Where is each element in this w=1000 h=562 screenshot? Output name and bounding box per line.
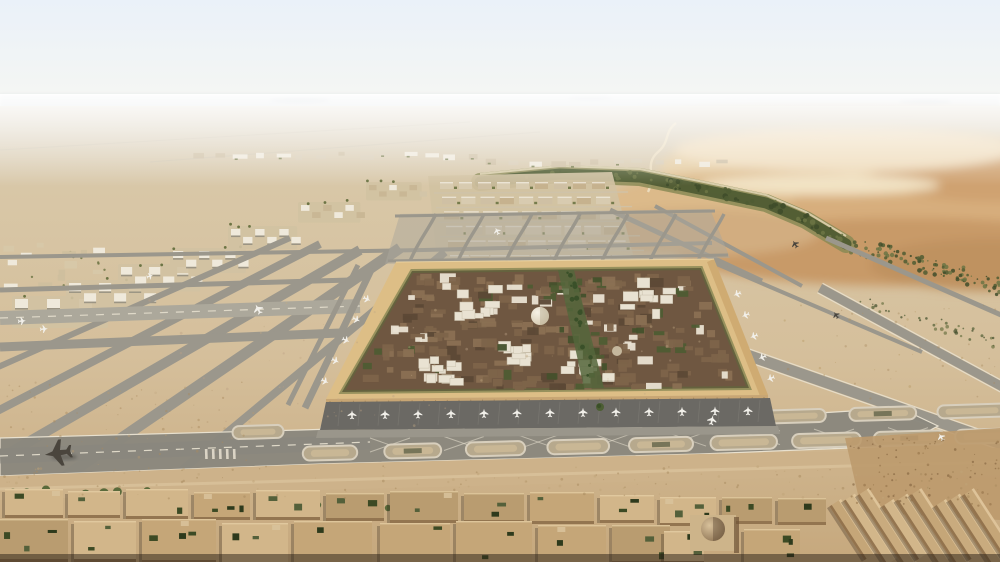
sand-speckle bbox=[79, 494, 80, 495]
courtyard bbox=[368, 500, 377, 506]
tree bbox=[578, 324, 581, 327]
sand-speckle bbox=[995, 442, 997, 444]
sand-speckle bbox=[552, 355, 553, 356]
shrub bbox=[958, 325, 960, 327]
sand-speckle bbox=[921, 480, 923, 482]
sand-speckle bbox=[655, 483, 657, 485]
sand-speckle bbox=[6, 482, 7, 483]
shrub bbox=[962, 328, 964, 330]
sand-speckle bbox=[355, 313, 356, 314]
sand-speckle bbox=[939, 359, 941, 361]
sand-speckle bbox=[829, 469, 830, 470]
town-block bbox=[8, 260, 17, 265]
shrub bbox=[916, 256, 920, 260]
terminal-building-block bbox=[701, 357, 712, 362]
shrub bbox=[988, 290, 991, 293]
sand-speckle bbox=[428, 404, 430, 406]
green-courtyard bbox=[632, 328, 638, 332]
shrub bbox=[996, 277, 999, 280]
sand-speckle bbox=[226, 388, 229, 391]
shrub bbox=[878, 242, 883, 247]
sand-speckle bbox=[634, 479, 635, 480]
sand-speckle bbox=[957, 498, 959, 500]
sand-speckle bbox=[468, 486, 470, 488]
shrub bbox=[977, 278, 979, 280]
canopy-shadow bbox=[291, 243, 300, 245]
courtyard bbox=[630, 499, 639, 503]
shrub bbox=[902, 252, 906, 256]
roof-highlight bbox=[444, 211, 459, 212]
shrub bbox=[943, 271, 946, 274]
threshold-marking bbox=[226, 449, 229, 459]
sand-speckle bbox=[9, 481, 10, 482]
sand-speckle bbox=[591, 309, 592, 310]
roof-patch bbox=[204, 494, 212, 499]
canopy-shadow bbox=[69, 291, 81, 293]
sand-speckle bbox=[327, 415, 329, 417]
sand-speckle bbox=[215, 449, 216, 450]
sand-speckle bbox=[886, 454, 888, 456]
sand-speckle bbox=[169, 411, 170, 412]
sand-speckle bbox=[941, 478, 943, 480]
sand-speckle bbox=[867, 440, 868, 441]
canopy-shadow bbox=[255, 235, 264, 237]
courtyard bbox=[15, 494, 24, 499]
shrub bbox=[877, 251, 879, 253]
sand-speckle bbox=[951, 355, 952, 356]
sand-speckle bbox=[599, 489, 601, 491]
tree bbox=[597, 404, 601, 408]
terminal-building-block bbox=[507, 285, 523, 290]
shrub bbox=[983, 337, 985, 339]
shrub bbox=[821, 231, 825, 235]
shrub bbox=[910, 255, 912, 257]
sand-speckle bbox=[906, 437, 908, 439]
sand-speckle bbox=[156, 484, 158, 486]
sand-speckle bbox=[905, 490, 907, 492]
sand-speckle bbox=[944, 323, 945, 324]
terminal-building-block bbox=[382, 344, 393, 351]
sand-speckle bbox=[120, 390, 122, 392]
sand-speckle bbox=[981, 491, 984, 494]
terminal-building-block bbox=[678, 276, 690, 286]
sand-speckle bbox=[180, 332, 183, 335]
sand-speckle bbox=[893, 473, 895, 475]
roof-highlight bbox=[538, 197, 552, 198]
sand-speckle bbox=[138, 456, 141, 459]
terminal-building-block bbox=[387, 367, 393, 373]
sand-speckle bbox=[879, 471, 881, 473]
shrub bbox=[956, 278, 960, 282]
tree bbox=[139, 264, 142, 267]
sand-speckle bbox=[392, 395, 394, 397]
sand-speckle bbox=[374, 311, 376, 313]
roof-highlight bbox=[464, 211, 479, 212]
courtyard bbox=[695, 504, 704, 508]
sand-speckle bbox=[505, 333, 508, 336]
sand-speckle bbox=[873, 484, 874, 485]
sand-speckle bbox=[912, 354, 913, 355]
sand-speckle bbox=[937, 473, 939, 475]
canopy-building bbox=[84, 293, 96, 301]
pad-green-strip bbox=[874, 411, 892, 417]
canopy-building bbox=[114, 293, 126, 301]
sand-speckle bbox=[141, 389, 142, 390]
sand-speckle bbox=[476, 471, 478, 473]
sand-speckle bbox=[981, 364, 983, 366]
sand-speckle bbox=[162, 418, 164, 420]
courtyard bbox=[337, 498, 345, 503]
terminal-building-block bbox=[615, 377, 629, 386]
sand-speckle bbox=[756, 465, 759, 468]
sand-speckle bbox=[65, 412, 68, 415]
roof-highlight bbox=[722, 497, 772, 498]
sand-speckle bbox=[260, 332, 262, 334]
sand-speckle bbox=[698, 341, 700, 343]
sand-speckle bbox=[76, 412, 78, 414]
sand-speckle bbox=[49, 385, 51, 387]
sand-speckle bbox=[835, 362, 836, 363]
sand-speckle bbox=[890, 378, 891, 379]
shrub bbox=[864, 247, 868, 251]
sand-speckle bbox=[965, 380, 966, 381]
shrub bbox=[992, 286, 996, 290]
apron-pad-inner bbox=[240, 428, 275, 435]
district-block bbox=[301, 205, 309, 211]
sand-speckle bbox=[927, 448, 929, 450]
sand-speckle bbox=[203, 377, 205, 379]
courtyard bbox=[232, 533, 239, 540]
tree bbox=[574, 318, 578, 322]
terminal-building-block bbox=[576, 384, 585, 390]
shrub bbox=[919, 319, 921, 321]
white-building-block bbox=[620, 304, 635, 309]
sand-speckle bbox=[841, 310, 842, 311]
terminal-building-block bbox=[403, 316, 412, 322]
sand-speckle bbox=[968, 493, 969, 494]
sand-speckle bbox=[603, 479, 604, 480]
gate-apron-surface bbox=[320, 398, 776, 430]
shrub bbox=[973, 282, 975, 284]
sand-speckle bbox=[908, 385, 911, 388]
terminal-building-block bbox=[499, 295, 512, 302]
sand-speckle bbox=[929, 488, 930, 489]
terminal-building-block bbox=[415, 337, 422, 342]
green-courtyard bbox=[497, 344, 506, 351]
shrub bbox=[853, 240, 857, 244]
white-building-block bbox=[637, 278, 649, 288]
tree bbox=[106, 277, 109, 280]
sand-speckle bbox=[37, 467, 40, 470]
shrub bbox=[734, 197, 738, 201]
shrub bbox=[810, 219, 816, 225]
sand-speckle bbox=[869, 397, 871, 399]
sand-speckle bbox=[117, 414, 118, 415]
sand-speckle bbox=[995, 478, 997, 480]
sand-speckle bbox=[922, 452, 923, 453]
block-face bbox=[126, 516, 188, 519]
shrub bbox=[895, 254, 898, 257]
courtyard bbox=[253, 536, 259, 539]
sand-speckle bbox=[895, 321, 898, 324]
courtyard bbox=[239, 506, 243, 513]
terminal-building-block bbox=[447, 346, 457, 355]
shrub bbox=[885, 310, 887, 312]
shrub bbox=[890, 253, 894, 257]
sand-speckle bbox=[669, 359, 671, 361]
sand-speckle bbox=[882, 497, 884, 499]
canopy-building bbox=[186, 260, 196, 267]
tree bbox=[97, 261, 99, 263]
threshold-marking bbox=[205, 449, 208, 459]
cast-shadow bbox=[461, 496, 464, 523]
courtyard bbox=[4, 532, 10, 539]
sand-speckle bbox=[899, 462, 900, 463]
roof-highlight bbox=[461, 197, 475, 198]
sand-speckle bbox=[994, 308, 996, 310]
terminal-building-block bbox=[618, 359, 632, 367]
sand-speckle bbox=[887, 473, 889, 475]
courtyard bbox=[433, 526, 442, 529]
terminal-building-block bbox=[614, 281, 625, 286]
courtyard bbox=[726, 506, 730, 512]
sand-speckle bbox=[948, 308, 949, 309]
sand-speckle bbox=[218, 367, 219, 368]
white-building-block bbox=[447, 361, 456, 367]
terminal-building-block bbox=[718, 350, 726, 358]
sand-speckle bbox=[548, 487, 550, 489]
sand-speckle bbox=[263, 326, 265, 328]
sand-speckle bbox=[943, 308, 944, 309]
sand-speckle bbox=[970, 470, 971, 471]
terminal-building-block bbox=[649, 278, 663, 287]
sand-speckle bbox=[817, 470, 818, 471]
tree bbox=[103, 269, 105, 271]
terminal-building-block bbox=[474, 288, 484, 292]
terminal-building-block bbox=[481, 321, 496, 326]
shrub bbox=[986, 276, 988, 278]
sand-speckle bbox=[184, 387, 186, 389]
terminal-building-block bbox=[638, 356, 653, 364]
terminal-building-block bbox=[695, 348, 703, 356]
terminal-building-block bbox=[408, 295, 415, 300]
sand-speckle bbox=[885, 485, 887, 487]
sand-speckle bbox=[819, 367, 821, 369]
sand-speckle bbox=[241, 381, 243, 383]
terminal-building-block bbox=[627, 311, 634, 317]
sand-speckle bbox=[789, 482, 790, 483]
sand-speckle bbox=[941, 330, 942, 331]
sand-speckle bbox=[906, 318, 908, 320]
sand-speckle bbox=[673, 326, 675, 328]
canopy-shadow bbox=[225, 258, 235, 260]
sand-speckle bbox=[382, 465, 384, 467]
sand-speckle bbox=[159, 453, 161, 455]
sand-speckle bbox=[199, 494, 202, 497]
sand-speckle bbox=[98, 464, 99, 465]
sand-speckle bbox=[453, 489, 455, 491]
shrub bbox=[811, 226, 814, 229]
green-courtyard bbox=[596, 355, 605, 359]
shrub bbox=[944, 331, 947, 334]
sand-speckle bbox=[259, 468, 260, 469]
shrub bbox=[864, 241, 866, 243]
sand-speckle bbox=[883, 476, 885, 478]
terminal-building-block bbox=[685, 346, 693, 350]
sand-speckle bbox=[297, 403, 298, 404]
cast-shadow bbox=[123, 492, 126, 519]
district-block bbox=[345, 205, 353, 211]
sand-speckle bbox=[480, 379, 482, 381]
shrub bbox=[724, 196, 730, 202]
roof-highlight bbox=[481, 197, 495, 198]
sand-speckle bbox=[452, 478, 455, 481]
block-face bbox=[530, 521, 594, 524]
sand-speckle bbox=[109, 399, 110, 400]
sand-speckle bbox=[655, 499, 656, 500]
sand-speckle bbox=[207, 421, 209, 423]
town-block bbox=[58, 275, 65, 281]
sand-speckle bbox=[641, 350, 643, 352]
courtyard bbox=[105, 526, 110, 529]
green-strip bbox=[568, 187, 571, 189]
shrub bbox=[907, 263, 910, 266]
terminal-building-block bbox=[608, 299, 614, 305]
sand-speckle bbox=[851, 313, 853, 315]
sand-speckle bbox=[284, 496, 285, 497]
tree bbox=[572, 281, 576, 285]
terminal-building-block bbox=[511, 297, 527, 304]
white-building-block bbox=[512, 353, 526, 359]
sand-speckle bbox=[842, 487, 845, 490]
sand-speckle bbox=[802, 496, 805, 499]
city-block bbox=[74, 521, 136, 559]
green-strip bbox=[534, 202, 537, 204]
sand-speckle bbox=[905, 497, 907, 499]
sand-speckle bbox=[969, 476, 971, 478]
courtyard bbox=[789, 539, 793, 545]
shrub bbox=[981, 334, 984, 337]
tree bbox=[566, 272, 568, 274]
courtyard bbox=[269, 496, 278, 501]
shrub bbox=[935, 263, 938, 266]
terminal-building-block bbox=[488, 370, 497, 377]
district-block bbox=[399, 191, 407, 196]
terminal-building-block bbox=[431, 309, 446, 313]
cast-shadow bbox=[657, 500, 660, 526]
sand-speckle bbox=[965, 483, 968, 486]
canopy-building bbox=[149, 267, 160, 275]
apron-pad-inner bbox=[800, 436, 853, 444]
sand-speckle bbox=[891, 479, 893, 481]
sand-speckle bbox=[345, 491, 346, 492]
gate-apron bbox=[316, 398, 780, 438]
sand-speckle bbox=[913, 485, 915, 487]
shrub bbox=[985, 339, 987, 341]
green-strip bbox=[454, 187, 457, 189]
sand-speckle bbox=[344, 497, 346, 499]
sand-speckle bbox=[895, 449, 897, 451]
sand-speckle bbox=[607, 380, 609, 382]
white-building-block bbox=[488, 285, 502, 293]
shrub bbox=[705, 190, 708, 193]
shrub bbox=[775, 203, 778, 206]
sand-speckle bbox=[283, 352, 285, 354]
city-block bbox=[194, 492, 250, 517]
shrub bbox=[918, 317, 920, 319]
block-face bbox=[5, 515, 63, 518]
cast-shadow bbox=[2, 492, 5, 518]
roof-highlight bbox=[519, 197, 533, 198]
courtyard bbox=[48, 530, 57, 533]
sand-speckle bbox=[188, 393, 190, 395]
sand-speckle bbox=[560, 478, 563, 481]
city-block bbox=[530, 492, 594, 521]
courtyard bbox=[538, 497, 544, 500]
sand-speckle bbox=[197, 473, 200, 476]
sand-speckle bbox=[787, 368, 790, 371]
cast-shadow bbox=[527, 495, 530, 524]
shrub bbox=[922, 267, 925, 270]
shrub bbox=[814, 224, 819, 229]
canopy-building bbox=[291, 237, 300, 243]
sand-speckle bbox=[678, 495, 680, 497]
sand-speckle bbox=[996, 459, 998, 461]
sand-speckle bbox=[19, 439, 20, 440]
sand-speckle bbox=[243, 495, 245, 497]
tree bbox=[588, 364, 591, 367]
canopy-building bbox=[255, 229, 264, 235]
courtyard bbox=[188, 532, 196, 536]
sand-speckle bbox=[518, 477, 519, 478]
roof-highlight bbox=[596, 197, 610, 198]
sand-speckle bbox=[413, 424, 416, 427]
sand-speckle bbox=[663, 467, 666, 470]
canopy-shadow bbox=[231, 235, 240, 237]
sand-speckle bbox=[915, 311, 916, 312]
white-building-block bbox=[442, 283, 450, 289]
sand-speckle bbox=[902, 443, 904, 445]
shrub bbox=[959, 268, 960, 269]
sand-speckle bbox=[139, 470, 140, 471]
terminal-building-block bbox=[636, 315, 647, 325]
sand-speckle bbox=[148, 299, 150, 301]
tree bbox=[160, 263, 163, 266]
terminal-complex bbox=[320, 259, 776, 408]
sand-speckle bbox=[937, 346, 940, 349]
sand-speckle bbox=[38, 438, 39, 439]
shrub bbox=[900, 316, 902, 318]
sand-speckle bbox=[863, 484, 866, 487]
terminal-building-block bbox=[426, 326, 434, 330]
sand-speckle bbox=[919, 347, 921, 349]
terminal-building-block bbox=[424, 279, 434, 286]
tree bbox=[580, 309, 582, 311]
sand-speckle bbox=[822, 476, 824, 478]
terminal-building-block bbox=[559, 338, 569, 346]
block-face bbox=[600, 520, 654, 523]
sand-speckle bbox=[356, 341, 358, 343]
courtyard bbox=[227, 506, 234, 510]
sand-speckle bbox=[928, 494, 931, 497]
shrub bbox=[869, 299, 871, 301]
terminal-building-block bbox=[676, 328, 685, 333]
town-block bbox=[37, 243, 44, 248]
sand-speckle bbox=[154, 391, 157, 394]
sand-speckle bbox=[984, 462, 986, 464]
sand-speckle bbox=[870, 497, 872, 499]
sand-speckle bbox=[162, 428, 165, 431]
